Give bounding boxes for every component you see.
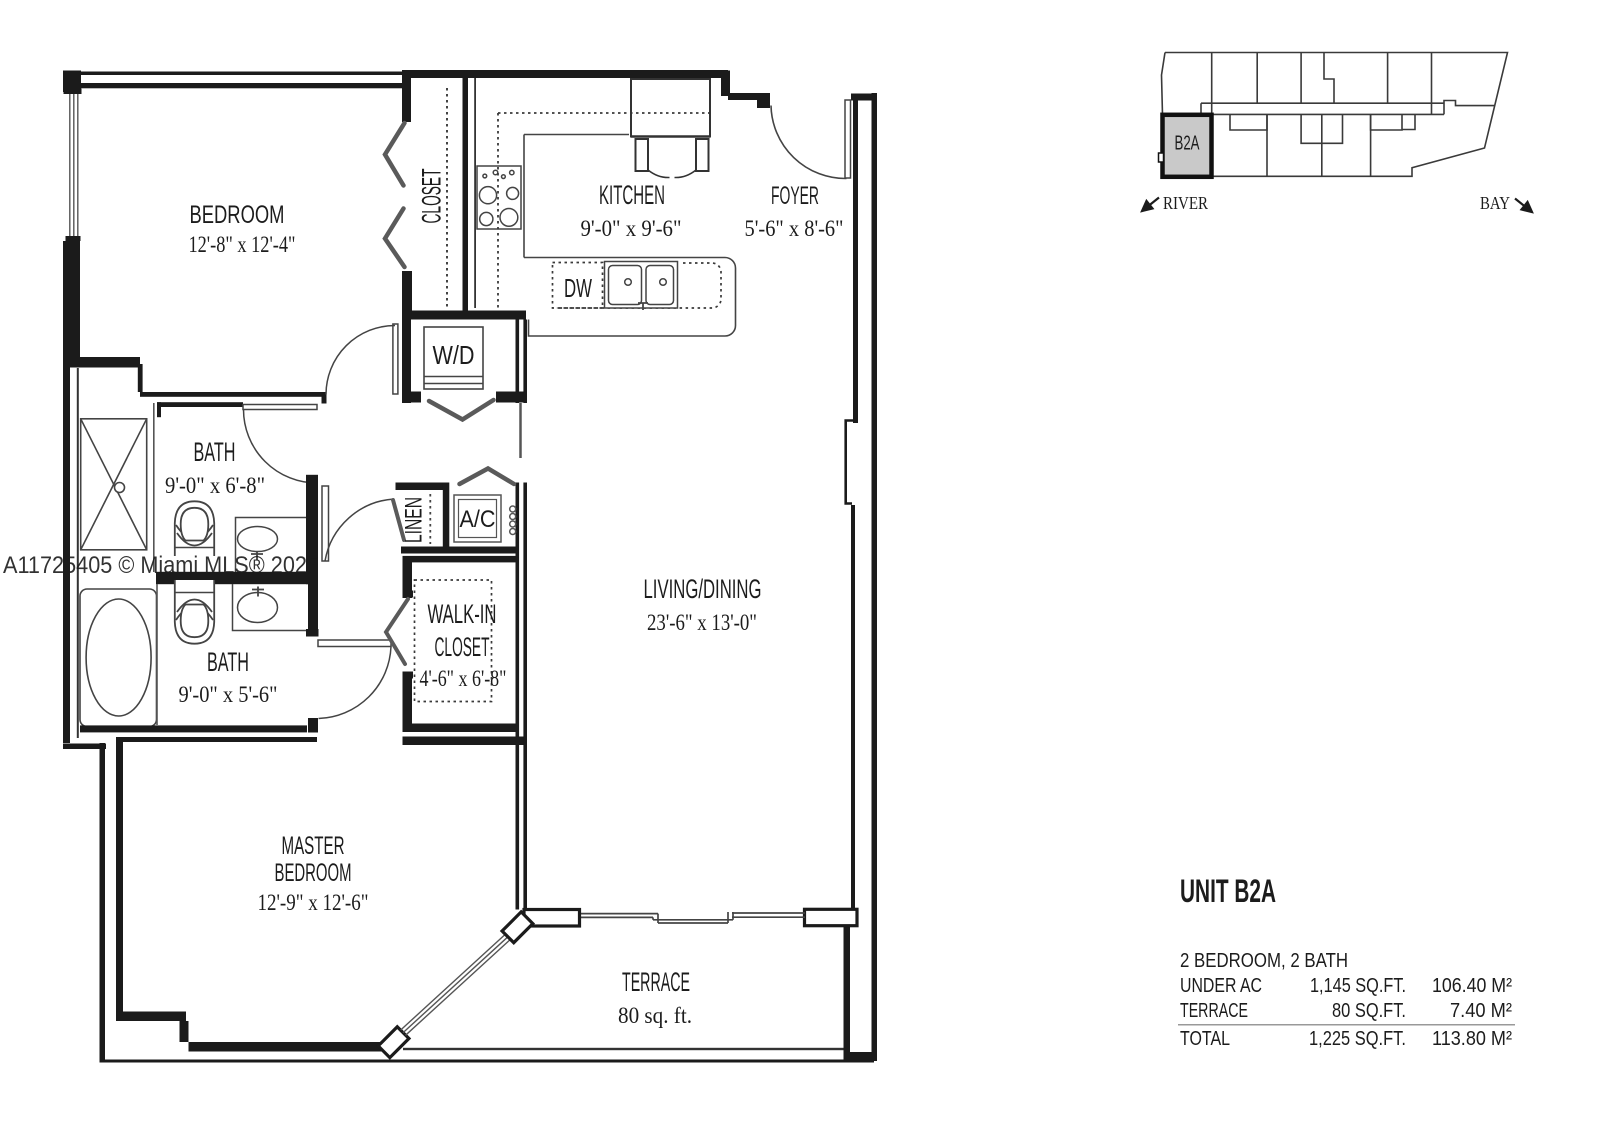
- svg-text:80 SQ.FT.: 80 SQ.FT.: [1332, 1000, 1406, 1022]
- svg-text:12'-9" x 12'-6": 12'-9" x 12'-6": [258, 890, 369, 915]
- svg-text:LIVING/DINING: LIVING/DINING: [644, 574, 762, 604]
- svg-text:BEDROOM: BEDROOM: [275, 859, 352, 887]
- svg-text:DW: DW: [564, 273, 592, 303]
- svg-text:W/D: W/D: [433, 340, 475, 370]
- svg-text:TERRACE: TERRACE: [622, 967, 690, 997]
- svg-text:MASTER: MASTER: [282, 832, 345, 860]
- svg-text:A11725405 © Miami MLS® 2025: A11725405 © Miami MLS® 2025: [3, 552, 319, 579]
- svg-text:CLOSET: CLOSET: [417, 169, 447, 224]
- svg-text:BAY: BAY: [1480, 193, 1510, 213]
- svg-text:9'-0" x 6'-8": 9'-0" x 6'-8": [165, 473, 265, 498]
- svg-text:7.40 M²: 7.40 M²: [1450, 1000, 1512, 1022]
- svg-text:4'-6" x 6'-8": 4'-6" x 6'-8": [420, 666, 507, 691]
- svg-text:TERRACE: TERRACE: [1180, 1000, 1248, 1022]
- svg-text:WALK-IN: WALK-IN: [428, 599, 497, 629]
- svg-text:BATH: BATH: [194, 437, 236, 467]
- svg-text:UNIT B2A: UNIT B2A: [1180, 873, 1276, 909]
- svg-text:BEDROOM: BEDROOM: [190, 201, 285, 229]
- svg-text:12'-8" x 12'-4": 12'-8" x 12'-4": [189, 232, 296, 257]
- svg-text:80 sq. ft.: 80 sq. ft.: [618, 1003, 692, 1028]
- svg-text:B2A: B2A: [1175, 133, 1200, 155]
- svg-text:1,145 SQ.FT.: 1,145 SQ.FT.: [1310, 975, 1406, 997]
- svg-text:BATH: BATH: [207, 647, 249, 677]
- svg-text:LINEN: LINEN: [401, 497, 428, 543]
- svg-text:KITCHEN: KITCHEN: [599, 180, 665, 210]
- svg-text:RIVER: RIVER: [1163, 193, 1208, 213]
- svg-text:A/C: A/C: [460, 506, 496, 533]
- svg-text:FOYER: FOYER: [771, 182, 819, 210]
- svg-text:CLOSET: CLOSET: [435, 632, 490, 662]
- svg-text:2 BEDROOM, 2 BATH: 2 BEDROOM, 2 BATH: [1180, 950, 1348, 972]
- svg-text:TOTAL: TOTAL: [1180, 1028, 1230, 1050]
- svg-text:113.80 M²: 113.80 M²: [1432, 1028, 1512, 1050]
- svg-text:5'-6" x 8'-6": 5'-6" x 8'-6": [745, 216, 844, 241]
- svg-text:9'-0" x 5'-6": 9'-0" x 5'-6": [179, 682, 278, 707]
- svg-text:9'-0" x 9'-6": 9'-0" x 9'-6": [581, 216, 682, 241]
- svg-text:23'-6" x 13'-0": 23'-6" x 13'-0": [647, 610, 757, 635]
- svg-text:1,225 SQ.FT.: 1,225 SQ.FT.: [1309, 1028, 1406, 1050]
- svg-text:106.40 M²: 106.40 M²: [1432, 975, 1512, 997]
- svg-text:UNDER AC: UNDER AC: [1180, 975, 1262, 997]
